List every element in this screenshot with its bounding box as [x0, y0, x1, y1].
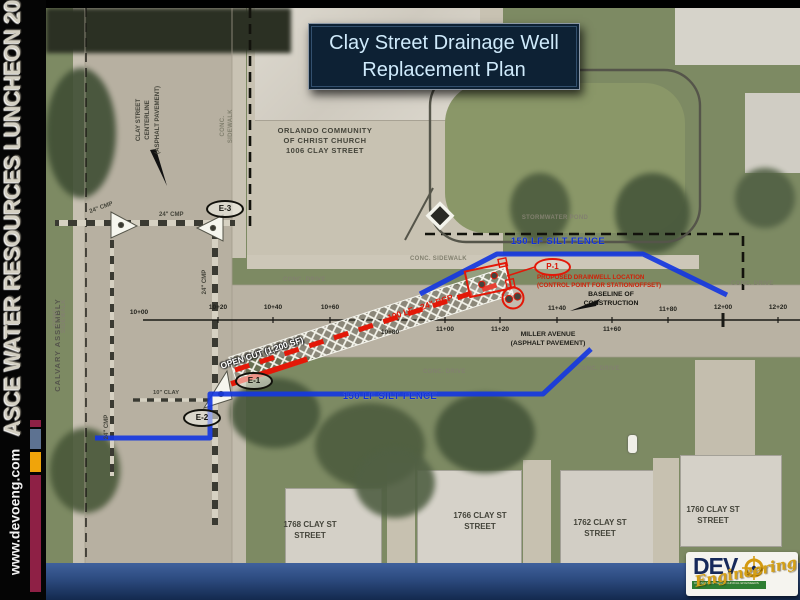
pond-label: STORMWATER POND	[522, 214, 588, 222]
conc-drive-label-2: CONC. DRIVE	[423, 368, 466, 376]
aerial-site-plan: ORLANDO COMMUNITY OF CHRIST CHURCH 1006 …	[46, 8, 800, 563]
p1-callout: P-1	[534, 258, 571, 276]
devo-logo: DEV CONSULTING GEOTECHNICAL ENGINEERS En…	[686, 552, 798, 596]
station-10+60: 10+60	[321, 304, 339, 311]
station-11+00: 11+00	[436, 326, 454, 333]
cmp-label-vertical-left: 24" CMP	[103, 407, 111, 447]
station-10+00: 10+00	[130, 309, 148, 316]
miller-avenue-label: MILLER AVENUE (ASPHALT PAVEMENT)	[511, 330, 586, 348]
cmp-label-mid: 24" CMP	[159, 211, 184, 219]
clay-pipe-label: 10" CLAY	[153, 390, 179, 398]
baseline-line	[143, 313, 800, 327]
title-box: Clay Street Drainage Well Replacement Pl…	[308, 23, 580, 90]
road-edges	[85, 8, 800, 563]
clay-centerline-label: CLAY STREET CENTERLINE (ASPHALT PAVEMENT…	[134, 80, 162, 160]
station-11+80: 11+80	[659, 306, 677, 313]
station-11+40: 11+40	[548, 305, 566, 312]
address-1766: 1766 CLAY ST STREET	[453, 511, 506, 533]
station-10+20: 10+20	[209, 304, 227, 311]
church-label: ORLANDO COMMUNITY OF CHRIST CHURCH 1006 …	[278, 126, 373, 156]
station-11+60: 11+60	[603, 326, 621, 333]
station-10+40: 10+40	[264, 304, 282, 311]
station-11+20: 11+20	[491, 326, 509, 333]
baseline-label: BASELINE OF CONSTRUCTION	[584, 290, 639, 308]
conc-sidewalk-label: CONC. SIDEWALK	[410, 255, 467, 263]
cmp-label-vertical: 24" CMP	[201, 262, 209, 302]
plan-linework	[55, 8, 800, 563]
station-12+20: 12+20	[769, 304, 787, 311]
address-1760: 1760 CLAY ST STREET	[686, 505, 739, 527]
address-1768: 1768 CLAY ST STREET	[283, 520, 336, 542]
station-12+00: 12+00	[714, 304, 732, 311]
conc-drive-label-4: CONC. DRIVE	[731, 280, 774, 288]
conc-drive-label-3: CONC. DRIVE	[577, 365, 620, 373]
plan-canvas: ORLANDO COMMUNITY OF CHRIST CHURCH 1006 …	[55, 8, 800, 563]
station-10+80: 10+80	[381, 329, 399, 336]
page-title: Clay Street Drainage Well Replacement Pl…	[329, 30, 559, 84]
e3-callout: E-3	[206, 200, 244, 218]
e2-callout: E-2	[183, 409, 221, 427]
conc-sidewalk-label-v2: CONC. SIDEWALK	[52, 291, 68, 341]
address-1762: 1762 CLAY ST STREET	[573, 518, 626, 540]
accent-bar-gold	[30, 452, 41, 472]
sidebar: ASCE WATER RESOURCES LUNCHEON 2010 www.d…	[0, 0, 46, 600]
silt-fence-south-label: 150 LF SILT FENCE	[343, 391, 437, 404]
e1-callout: E-1	[235, 372, 273, 390]
accent-bar-slate	[30, 429, 41, 449]
drainwell-note: PROPOSED DRAINWELL LOCATION (CONTROL POI…	[537, 274, 661, 291]
diamond-marker	[428, 204, 452, 228]
accent-bar-maroon	[30, 475, 41, 592]
silt-fence-north-label: 150 LF SILT FENCE	[511, 236, 605, 249]
conc-drive-label-1: CONC. DRIVE	[283, 276, 326, 284]
accent-bar-maroon-top	[30, 420, 41, 427]
event-title: ASCE WATER RESOURCES LUNCHEON 2010	[0, 16, 36, 436]
slide: ORLANDO COMMUNITY OF CHRIST CHURCH 1006 …	[0, 0, 800, 600]
conc-sidewalk-label-v1: CONC. SIDEWALK	[219, 101, 235, 151]
website-link[interactable]: www.devoeng.com	[7, 430, 23, 595]
